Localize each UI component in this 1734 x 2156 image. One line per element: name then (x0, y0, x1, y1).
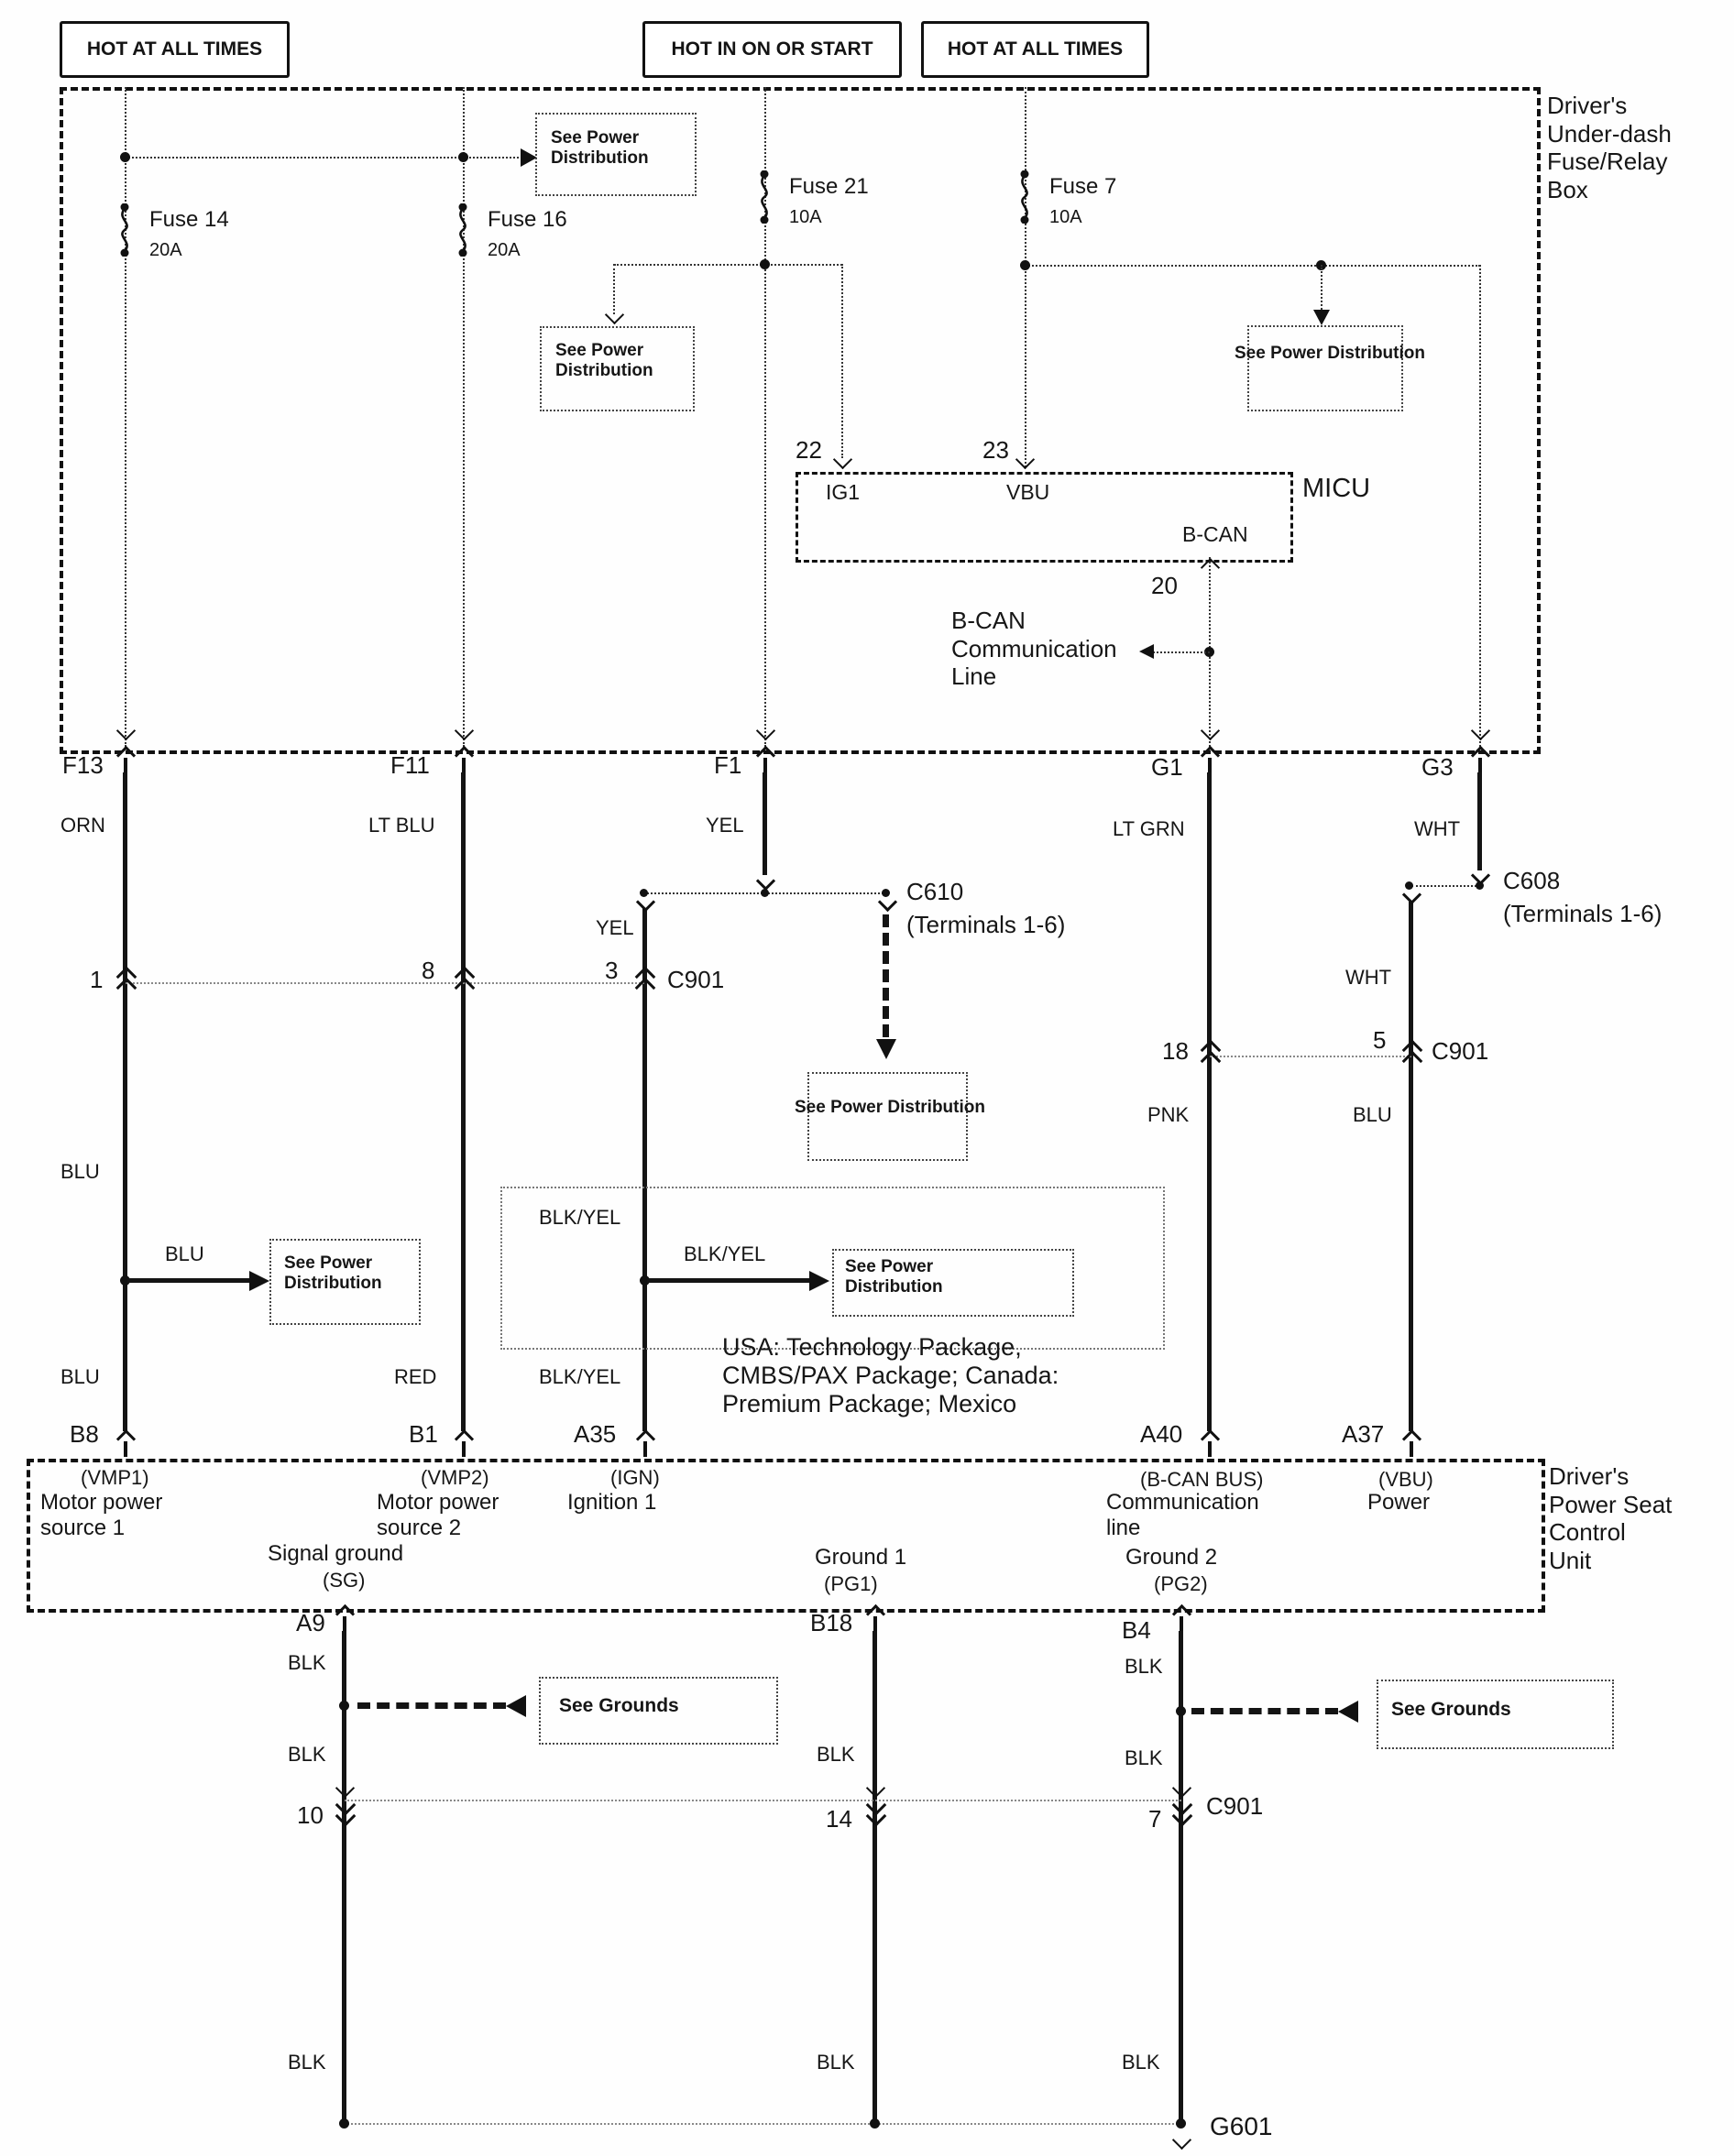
connector-fork-a37 (1401, 1431, 1421, 1457)
wire-color-blk-b4-3: BLK (1122, 2051, 1160, 2074)
ground-dot-b4 (1176, 2118, 1186, 2129)
micu-title: MICU (1302, 473, 1370, 504)
micu-bcan-label: B-CAN (1182, 522, 1248, 547)
fuse7-rating: 10A (1049, 207, 1082, 229)
junction-dot (1176, 1706, 1186, 1716)
wire-color-blk-a9-3: BLK (288, 2051, 326, 2074)
pin-1: 1 (90, 966, 103, 994)
connector-c610: C610 (906, 878, 963, 906)
wiring-diagram-page: HOT AT ALL TIMES HOT IN ON OR START HOT … (0, 0, 1734, 2156)
pin-5: 5 (1373, 1026, 1386, 1055)
label-communication-line: Communicationline (1106, 1490, 1259, 1542)
fuse21-name: Fuse 21 (789, 174, 869, 200)
pin-10: 10 (297, 1801, 324, 1830)
ground-tie-leader (345, 2123, 1181, 2125)
arrow-right-icon (249, 1271, 269, 1291)
wire-b18-blk (872, 1631, 877, 2124)
header-hot-at-all-times-1: HOT AT ALL TIMES (60, 21, 290, 78)
arrow-left-icon (506, 1695, 526, 1717)
wire-color-blu-right: BLU (1353, 1103, 1392, 1127)
connector-fork-f1 (755, 748, 775, 773)
pin-b4: B4 (1122, 1616, 1151, 1645)
header-hot-at-all-times-2: HOT AT ALL TIMES (921, 21, 1149, 78)
pin-a35: A35 (574, 1420, 616, 1449)
wire-color-blkyel-1: BLK/YEL (539, 1206, 620, 1230)
pin-7: 7 (1148, 1805, 1161, 1833)
pin-b1: B1 (409, 1420, 438, 1449)
inline-connector-1 (116, 969, 135, 997)
pin-a37: A37 (1342, 1420, 1384, 1449)
wire-color-blk-b4-2: BLK (1125, 1746, 1163, 1770)
wire-g3-feed (1479, 265, 1481, 747)
wire-color-orn: ORN (60, 814, 105, 837)
connector-fork-b18 (865, 1606, 885, 1632)
pin-g1: G1 (1151, 753, 1183, 782)
see-grounds-dash-right (1191, 1708, 1338, 1714)
fuse-symbol-16 (454, 203, 472, 257)
fuse-symbol-21 (755, 170, 774, 224)
inline-connector-18 (1201, 1043, 1219, 1070)
pin-18: 18 (1162, 1037, 1189, 1066)
see-power3-drop (1321, 265, 1322, 312)
see-power-distribution-label: See Power Distribution (1235, 344, 1425, 364)
connector-c901-2: C901 (1432, 1037, 1488, 1066)
pin-a9: A9 (296, 1609, 325, 1637)
label-vmp1: (VMP1) (81, 1466, 149, 1490)
junction-dot (761, 889, 769, 897)
see-power-distribution-label: See PowerDistribution (555, 341, 653, 382)
see-grounds-dash-left (357, 1702, 506, 1709)
fuse16-name: Fuse 16 (488, 207, 567, 233)
ground-dot-b18 (870, 2118, 880, 2129)
bcan-communication-line-label: B-CANCommunicationLine (951, 607, 1117, 691)
junction-dot (339, 1701, 349, 1711)
pin-8: 8 (422, 957, 434, 985)
pin-g3: G3 (1421, 753, 1454, 782)
fuse21-branch-drop-right (841, 264, 843, 458)
see-power-distribution-label: See PowerDistribution (284, 1253, 382, 1295)
wire-color-yel-2: YEL (596, 916, 634, 940)
wire-color-ltgrn: LT GRN (1113, 817, 1185, 841)
arrow-down-icon (876, 1039, 896, 1059)
pin-14: 14 (826, 1805, 852, 1833)
wire-color-blk-b18-2: BLK (817, 2051, 855, 2074)
see-power-distribution-label: See PowerDistribution (845, 1257, 943, 1298)
wire-end-fork (757, 874, 774, 889)
micu-pin-23: 23 (982, 436, 1009, 465)
wire-f1-yel (763, 772, 767, 875)
wire-color-blu-2: BLU (60, 1365, 100, 1389)
fuse21-rating: 10A (789, 207, 822, 229)
inline-connector-5 (1402, 1043, 1421, 1070)
wire-b4-blk (1179, 1631, 1183, 2124)
wire-color-red: RED (394, 1365, 436, 1389)
fuse-box-title: Driver'sUnder-dashFuse/RelayBox (1547, 92, 1672, 204)
header-label: HOT AT ALL TIMES (948, 38, 1123, 60)
arrow-right-icon (809, 1271, 829, 1291)
see-power-distribution-label: See Power Distribution (795, 1098, 985, 1118)
connector-fork-a9 (335, 1606, 355, 1632)
wire-color-wht: WHT (1414, 817, 1460, 841)
pin-3: 3 (605, 957, 618, 985)
connector-fork-a35 (635, 1431, 655, 1457)
junction-dot (1020, 260, 1030, 270)
micu-pin-22: 22 (796, 436, 822, 465)
connector-c608-terminals: (Terminals 1-6) (1503, 900, 1662, 928)
pin-b8: B8 (70, 1420, 99, 1449)
market-variant-note: USA: Technology Package,CMBS/PAX Package… (722, 1333, 1059, 1418)
connector-c901-1: C901 (667, 966, 724, 994)
wire-start-fork-c610 (879, 895, 895, 910)
wire-color-pnk: PNK (1147, 1103, 1189, 1127)
fuse14-rating: 20A (149, 240, 182, 262)
bcan-ref-line (1153, 651, 1210, 653)
wire-fuse7-feed (1025, 87, 1026, 467)
c901-leader-2 (1210, 1056, 1411, 1057)
wire-fuse14-feed (125, 87, 126, 747)
wire-color-wht-2: WHT (1345, 966, 1391, 990)
header-label: HOT IN ON OR START (671, 38, 872, 60)
micu-vbu-label: VBU (1006, 480, 1049, 505)
label-pg1: (PG1) (824, 1572, 878, 1596)
arrow-left-icon (1139, 644, 1154, 659)
junction-dot (120, 152, 130, 162)
wire-color-blkyel-2: BLK/YEL (539, 1365, 620, 1389)
control-unit-box-border (27, 1459, 1545, 1613)
control-unit-title: Driver'sPower SeatControlUnit (1549, 1462, 1672, 1575)
header-hot-in-on-or-start: HOT IN ON OR START (642, 21, 902, 78)
wire-color-blu-1: BLU (60, 1160, 100, 1184)
fuse14-name: Fuse 14 (149, 207, 229, 233)
fuse16-rating: 20A (488, 240, 521, 262)
wire-color-blk-a9-2: BLK (288, 1743, 326, 1767)
micu-ig1-label: IG1 (826, 480, 860, 505)
c901-leader-3 (345, 1800, 1181, 1801)
ground-g601: G601 (1210, 2111, 1273, 2141)
fuse7-branch-line (1026, 265, 1480, 267)
wire-start-fork (637, 895, 653, 910)
connector-fork-b8 (115, 1431, 136, 1457)
label-motor-power-1: Motor powersource 1 (40, 1490, 162, 1542)
inline-connector-7 (1172, 1798, 1191, 1825)
label-ground-2: Ground 2 (1125, 1545, 1217, 1570)
fuse7-name: Fuse 7 (1049, 174, 1116, 200)
label-ignition-1: Ignition 1 (567, 1490, 656, 1516)
wire-color-blkyel-arrow: BLK/YEL (684, 1242, 765, 1266)
fuse21-branch-line (614, 264, 842, 266)
pin-f1: F1 (714, 751, 741, 780)
connector-fork-a40 (1200, 1431, 1220, 1457)
label-signal-ground: Signal ground (268, 1541, 403, 1567)
wire-color-blk-b18-1: BLK (817, 1743, 855, 1767)
inline-connector-3 (635, 969, 653, 997)
c610-ref-wire (883, 914, 889, 1037)
wire-color-blk-b4-1: BLK (1125, 1655, 1163, 1679)
wire-g3-wht (1477, 772, 1482, 870)
label-ign: (IGN) (610, 1466, 660, 1490)
wire-fuse16-feed (463, 87, 465, 747)
connector-c608: C608 (1503, 867, 1560, 895)
label-motor-power-2: Motor powersource 2 (377, 1490, 499, 1542)
micu-pin-20: 20 (1151, 572, 1178, 600)
see-power-distribution-label: See PowerDistribution (551, 128, 649, 170)
jog-line-c608 (1411, 885, 1480, 887)
see-grounds-label: See Grounds (559, 1695, 679, 1718)
wire-a40-pnk (1207, 772, 1212, 1431)
inline-connector-10 (335, 1798, 354, 1825)
fuse-symbol-7 (1015, 170, 1034, 224)
label-bcan-bus: (B-CAN BUS) (1140, 1468, 1263, 1492)
tie-line-top (126, 157, 530, 159)
connector-fork-g1 (1200, 748, 1220, 773)
see-power-distribution-box-3 (1247, 325, 1403, 411)
junction-dot (458, 152, 468, 162)
inline-connector-8 (455, 969, 473, 997)
pin-f13: F13 (62, 751, 104, 780)
header-label: HOT AT ALL TIMES (87, 38, 262, 60)
label-vmp2: (VMP2) (421, 1466, 489, 1490)
wire-color-yel: YEL (706, 814, 744, 837)
label-power: Power (1367, 1490, 1430, 1516)
wire-color-blk-a9-1: BLK (288, 1651, 326, 1675)
label-sg: (SG) (323, 1569, 365, 1592)
junction-dot (760, 259, 770, 269)
see-grounds-label: See Grounds (1391, 1699, 1511, 1722)
c901-leader-1 (126, 982, 644, 984)
arrow-left-icon (1338, 1701, 1358, 1723)
blkyel-branch-line (647, 1278, 811, 1283)
label-vbu: (VBU) (1378, 1468, 1433, 1492)
wire-b1-red (461, 772, 466, 1431)
blu-branch-line (127, 1278, 251, 1283)
connector-fork-b4 (1171, 1606, 1191, 1632)
connector-c901-3: C901 (1206, 1792, 1263, 1821)
wire-color-ltblu: LT BLU (368, 814, 435, 837)
pin-f11: F11 (390, 751, 430, 780)
fuse-symbol-14 (115, 203, 134, 257)
pin-a40: A40 (1140, 1420, 1182, 1449)
connector-fork-b1 (454, 1431, 474, 1457)
wire-color-blu-arrow: BLU (165, 1242, 204, 1266)
connector-fork-g3 (1470, 748, 1490, 773)
junction-dot (1476, 881, 1484, 890)
label-ground-1: Ground 1 (815, 1545, 906, 1570)
connector-fork-f11 (454, 748, 474, 773)
ground-symbol-icon (1172, 2130, 1191, 2150)
pin-b18: B18 (810, 1609, 852, 1637)
inline-connector-14 (866, 1798, 884, 1825)
connector-c610-terminals: (Terminals 1-6) (906, 911, 1065, 939)
ground-dot-a9 (339, 2118, 349, 2129)
wire-b8-blu (123, 772, 127, 1431)
connector-fork-f13 (115, 748, 136, 773)
arrow-down-icon (1313, 310, 1330, 325)
label-pg2: (PG2) (1154, 1572, 1208, 1596)
wire-a37-blu (1409, 902, 1413, 1431)
wire-start-fork (1403, 888, 1420, 903)
